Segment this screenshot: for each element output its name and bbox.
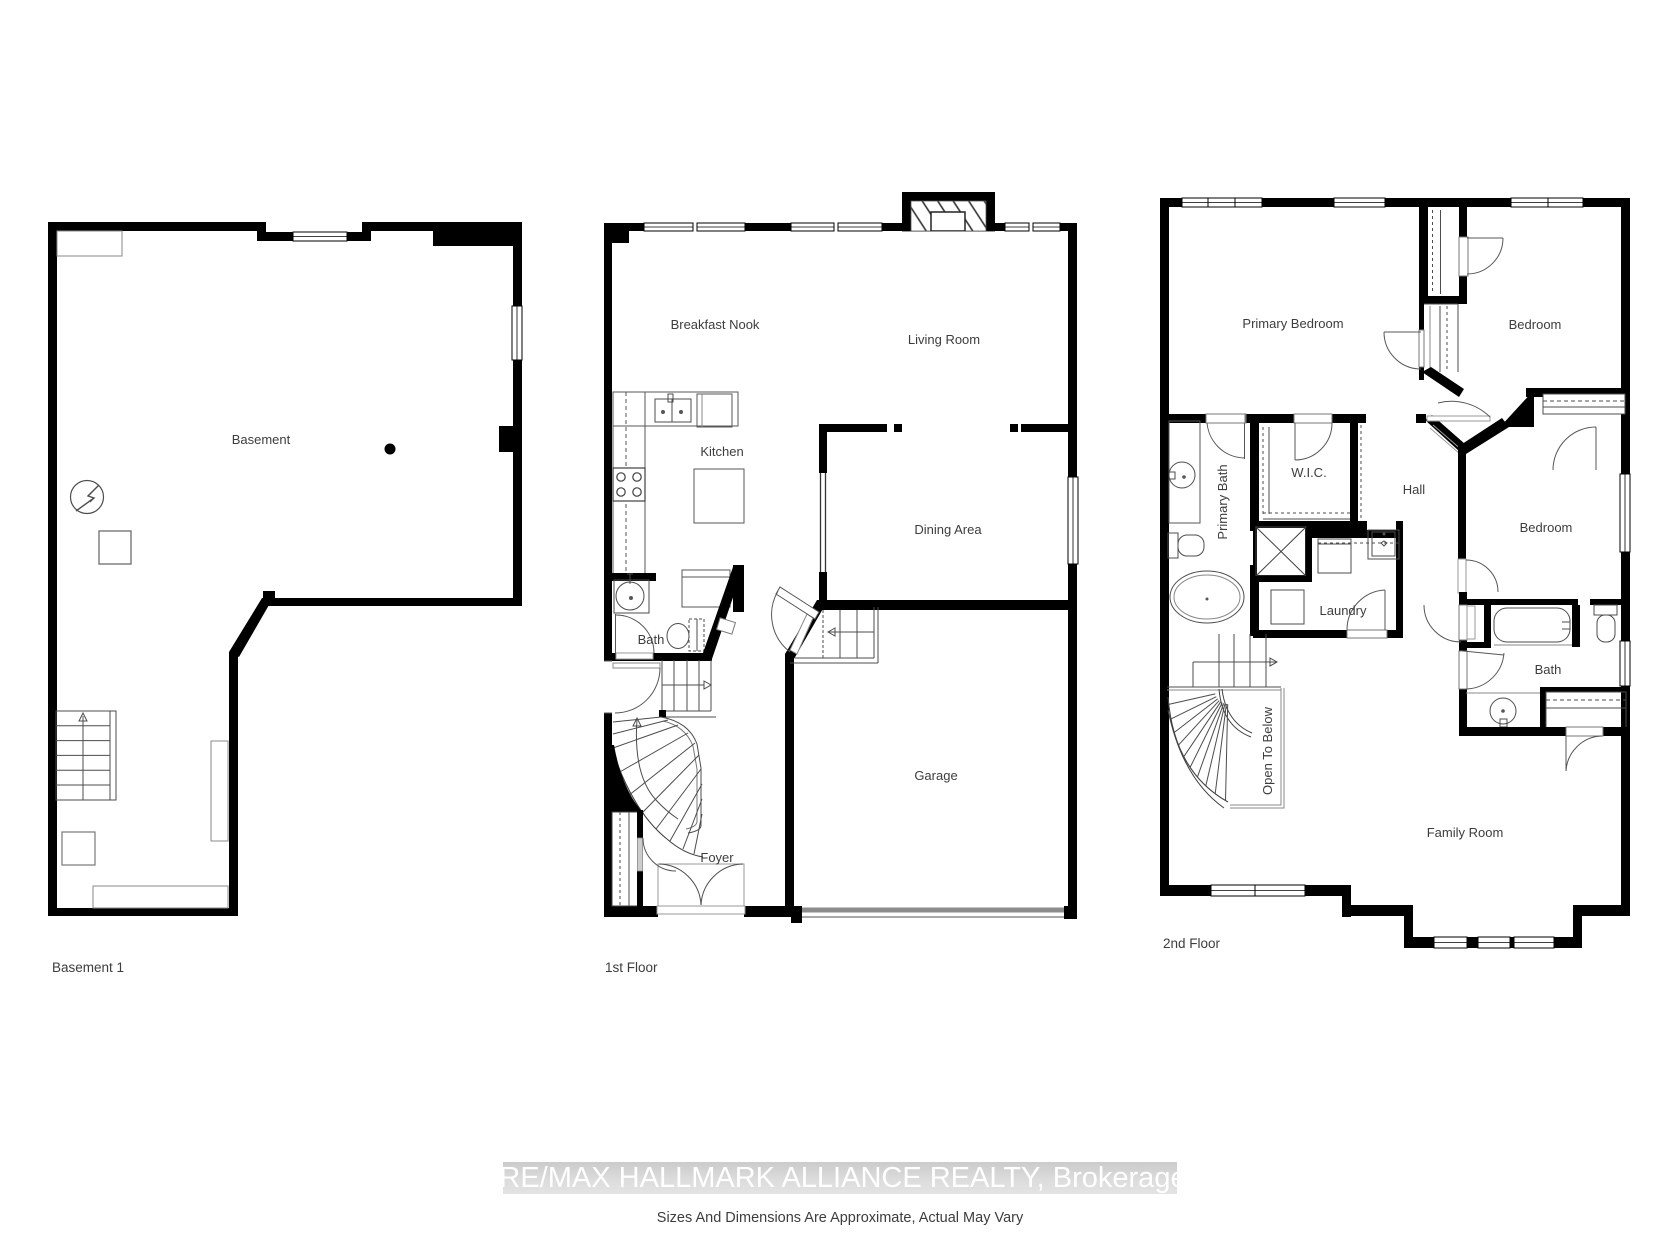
svg-text:2nd Floor: 2nd Floor [1163,936,1221,951]
svg-text:Dining Area: Dining Area [914,522,982,537]
svg-text:Primary Bedroom: Primary Bedroom [1242,316,1343,331]
svg-text:Bedroom: Bedroom [1520,520,1573,535]
svg-text:Basement: Basement [232,432,291,447]
svg-text:Foyer: Foyer [700,850,734,865]
svg-text:Laundry: Laundry [1320,603,1367,618]
svg-text:Bath: Bath [638,632,665,647]
svg-text:Living Room: Living Room [908,332,980,347]
svg-text:Sizes And Dimensions Are Appro: Sizes And Dimensions Are Approximate, Ac… [657,1210,1024,1226]
svg-text:Bedroom: Bedroom [1509,317,1562,332]
svg-text:RE/MAX HALLMARK ALLIANCE REALT: RE/MAX HALLMARK ALLIANCE REALTY, Brokera… [499,1162,1186,1194]
svg-text:Kitchen: Kitchen [700,444,743,459]
svg-text:1st Floor: 1st Floor [605,960,658,975]
svg-text:Bath: Bath [1535,662,1562,677]
svg-text:Family Room: Family Room [1427,825,1504,840]
svg-text:W.I.C.: W.I.C. [1291,465,1326,480]
svg-text:Open To Below: Open To Below [1260,706,1275,795]
svg-text:Garage: Garage [914,768,957,783]
svg-text:Primary Bath: Primary Bath [1215,464,1230,539]
svg-text:Basement 1: Basement 1 [52,960,124,975]
svg-text:Breakfast Nook: Breakfast Nook [671,317,760,332]
svg-text:Hall: Hall [1403,482,1426,497]
